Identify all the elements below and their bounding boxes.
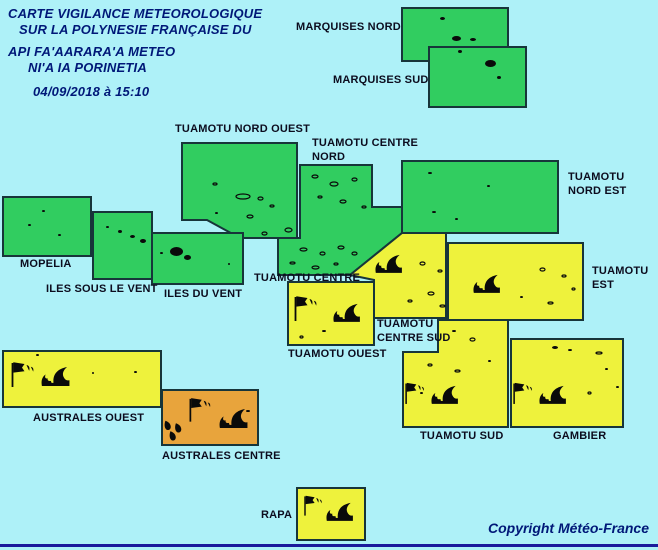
island-mark (485, 60, 496, 67)
island-mark (106, 226, 109, 228)
zone-iles-du-vent[interactable] (152, 233, 243, 284)
zone-label-mopelia: MOPELIA (20, 258, 72, 272)
island-mark (160, 252, 163, 254)
island-mark (184, 255, 191, 260)
zone-label-rapa: RAPA (261, 509, 292, 523)
zone-label-tuamotu-centre-nord: TUAMOTU CENTRE NORD (312, 137, 418, 164)
zone-label-tuamotu-est: TUAMOTU EST (592, 265, 648, 292)
island-mark (605, 368, 608, 370)
island-mark (42, 210, 45, 212)
island-mark (58, 234, 61, 236)
page-title-maori-line-2: NI'A IA PORINETIA (28, 60, 147, 75)
island-mark (228, 263, 230, 265)
island-mark (92, 372, 94, 374)
map-datetime: 04/09/2018 à 15:10 (33, 84, 149, 99)
zone-label-tuamotu-nord-est: TUAMOTU NORD EST (568, 171, 626, 198)
zone-label-iles-du-vent: ILES DU VENT (164, 288, 242, 302)
zone-tuamotu-nord-ouest[interactable] (182, 143, 297, 238)
zone-label-tuamotu-ouest: TUAMOTU OUEST (288, 348, 387, 362)
zone-label-tuamotu-sud: TUAMOTU SUD (420, 430, 503, 444)
island-mark (36, 354, 39, 356)
page-title-maori-line-1: API FA'AARARA'A METEO (8, 44, 175, 59)
island-mark (488, 360, 491, 362)
zone-australes-centre[interactable] (162, 390, 258, 445)
zone-label-tuamotu-centre-sud: TUAMOTU CENTRE SUD (377, 318, 451, 345)
zone-australes-ouest[interactable] (3, 351, 161, 407)
island-mark (568, 349, 572, 351)
island-mark (616, 386, 619, 388)
island-mark (497, 76, 501, 79)
zone-label-tuamotu-centre: TUAMOTU CENTRE (254, 272, 360, 286)
zone-label-marquises-sud: MARQUISES SUD (333, 74, 429, 88)
island-mark (170, 247, 183, 256)
zone-tuamotu-est[interactable] (448, 243, 583, 320)
island-mark (552, 346, 558, 349)
island-mark (140, 239, 146, 243)
island-mark (455, 218, 458, 220)
zone-gambier[interactable] (511, 339, 623, 427)
copyright-notice: Copyright Météo-France (488, 520, 649, 536)
island-mark (322, 330, 326, 332)
zone-mopelia[interactable] (3, 197, 91, 256)
zone-iles-sous-le-vent[interactable] (93, 212, 152, 279)
zone-label-tuamotu-nord-ouest: TUAMOTU NORD OUEST (175, 123, 310, 137)
island-mark (428, 172, 432, 174)
island-mark (440, 17, 445, 20)
island-mark (118, 230, 122, 233)
zone-marquises-sud[interactable] (429, 47, 526, 107)
island-mark (452, 36, 461, 41)
island-mark (458, 50, 462, 53)
island-mark (246, 410, 250, 412)
island-mark (520, 296, 523, 298)
page-title-line-2: SUR LA POLYNESIE FRANÇAISE DU (19, 22, 252, 37)
island-mark (470, 38, 476, 41)
island-mark (432, 211, 436, 213)
island-mark (134, 371, 137, 373)
zone-tuamotu-nord-est[interactable] (402, 161, 558, 233)
island-mark (130, 235, 135, 238)
page-title-line-1: CARTE VIGILANCE METEOROLOGIQUE (8, 6, 262, 21)
island-mark (487, 185, 490, 187)
zone-label-gambier: GAMBIER (553, 430, 606, 444)
zone-label-marquises-nord: MARQUISES NORD (296, 21, 401, 35)
island-mark (452, 330, 456, 332)
island-mark (215, 212, 218, 214)
zone-label-iles-sous-le-vent: ILES SOUS LE VENT (46, 283, 158, 297)
island-mark (420, 392, 423, 394)
bottom-divider (0, 544, 658, 547)
zone-label-australes-ouest: AUSTRALES OUEST (33, 412, 144, 426)
vigilance-map-page: CARTE VIGILANCE METEOROLOGIQUE SUR LA PO… (0, 0, 658, 550)
zone-label-australes-centre: AUSTRALES CENTRE (162, 450, 281, 464)
island-mark (28, 224, 31, 226)
